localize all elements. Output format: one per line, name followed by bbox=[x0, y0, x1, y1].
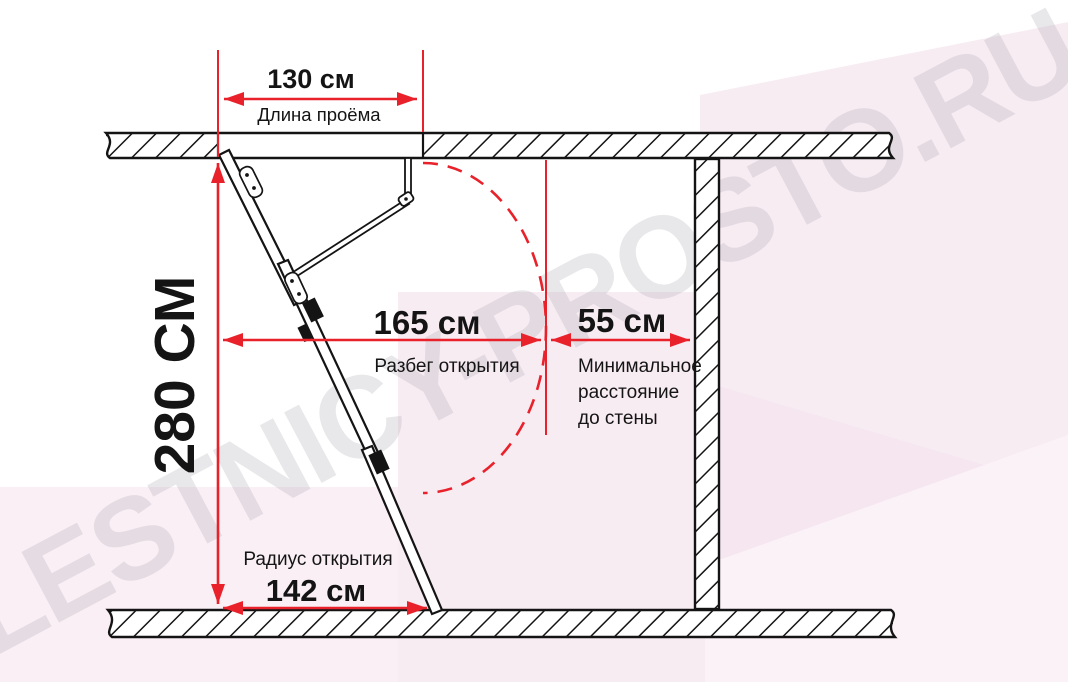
arm-hinge-pin bbox=[404, 197, 408, 201]
label-opening-run-value: 165 см bbox=[374, 304, 481, 341]
label-opening-length-caption: Длина проёма bbox=[257, 104, 381, 125]
label-wall-clearance-caption-line2: расстояние bbox=[578, 382, 679, 403]
floor-hatch bbox=[110, 611, 893, 636]
ladder-support-arm bbox=[287, 200, 409, 280]
diagram-canvas: LESTNICY-PROSTO.RU bbox=[0, 0, 1068, 682]
wall-hatch bbox=[696, 160, 718, 608]
ceiling-hatch-right bbox=[423, 134, 889, 157]
ceiling-hatch-left bbox=[106, 134, 218, 157]
label-opening-radius-value: 142 см bbox=[266, 573, 367, 608]
label-wall-clearance-caption-line3: до стены bbox=[578, 408, 658, 429]
attic-ladder-dimensions-diagram: LESTNICY-PROSTO.RU bbox=[0, 0, 1068, 682]
label-opening-radius-caption: Радиус открытия bbox=[243, 549, 392, 570]
label-opening-run-caption: Разбег открытия bbox=[374, 356, 519, 377]
label-wall-clearance-caption-line1: Минимальное bbox=[578, 356, 702, 377]
label-ceiling-height-value: 280 СМ bbox=[143, 276, 207, 475]
ladder-support-rod bbox=[405, 158, 411, 196]
label-opening-length-value: 130 см bbox=[267, 64, 355, 94]
label-wall-clearance-value: 55 см bbox=[578, 302, 667, 339]
